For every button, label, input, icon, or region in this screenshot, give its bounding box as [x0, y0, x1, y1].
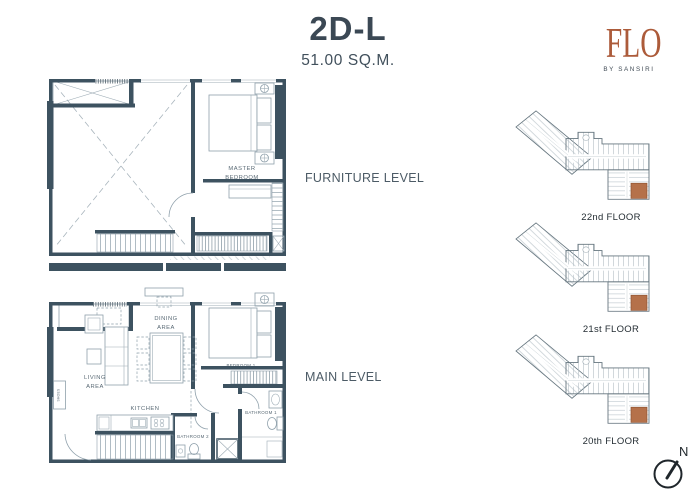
unit-title-block: 2D-L 51.00 SQ.M.	[301, 12, 395, 70]
master-bedroom-label: MASTER	[228, 166, 255, 172]
unit-area: 51.00 SQ.M.	[301, 52, 395, 70]
bathroom1-label: BATHROOM 1	[245, 410, 277, 415]
flo-logo-text: FLO	[606, 24, 652, 64]
shoes-label: SHOES	[57, 388, 61, 402]
main-level-plan: SHOES LIVING AREA DINING AREA	[45, 263, 290, 473]
furniture-level-label: FURNITURE LEVEL	[305, 171, 424, 185]
compass-needle	[667, 462, 677, 478]
main-level-label: MAIN LEVEL	[305, 370, 382, 384]
main-plan-svg: SHOES LIVING AREA DINING AREA	[45, 263, 290, 468]
brand-byline: BY SANSIRI	[596, 66, 662, 73]
dining-area-label: DINING	[154, 316, 177, 322]
bathroom2-label: BATHROOM 2	[177, 434, 209, 439]
floor-plan-page: 2D-L 51.00 SQ.M. FLO BY SANSIRI FURNITUR…	[0, 0, 700, 498]
svg-text:AREA: AREA	[86, 384, 104, 390]
keyplan-22nd-floor: 22nd FLOOR	[508, 110, 688, 232]
keyplan-21st-floor: 21st FLOOR	[508, 222, 688, 344]
keyplan-21-svg	[508, 222, 683, 322]
furniture-plan-svg: MASTER BEDROOM	[45, 75, 290, 260]
svg-text:AREA: AREA	[157, 325, 175, 331]
svg-text:BEDROOM: BEDROOM	[225, 175, 258, 181]
compass-icon: N	[640, 436, 700, 496]
brand-logo: FLO BY SANSIRI	[596, 24, 662, 73]
unit-name: 2D-L	[301, 12, 395, 46]
keyplan-20-svg	[508, 334, 683, 434]
keyplan-22-svg	[508, 110, 683, 210]
compass-north-label: N	[679, 444, 688, 459]
furniture-level-plan: MASTER BEDROOM	[45, 75, 290, 265]
kitchen-label: KITCHEN	[131, 406, 160, 412]
living-area-label: LIVING	[84, 375, 106, 381]
